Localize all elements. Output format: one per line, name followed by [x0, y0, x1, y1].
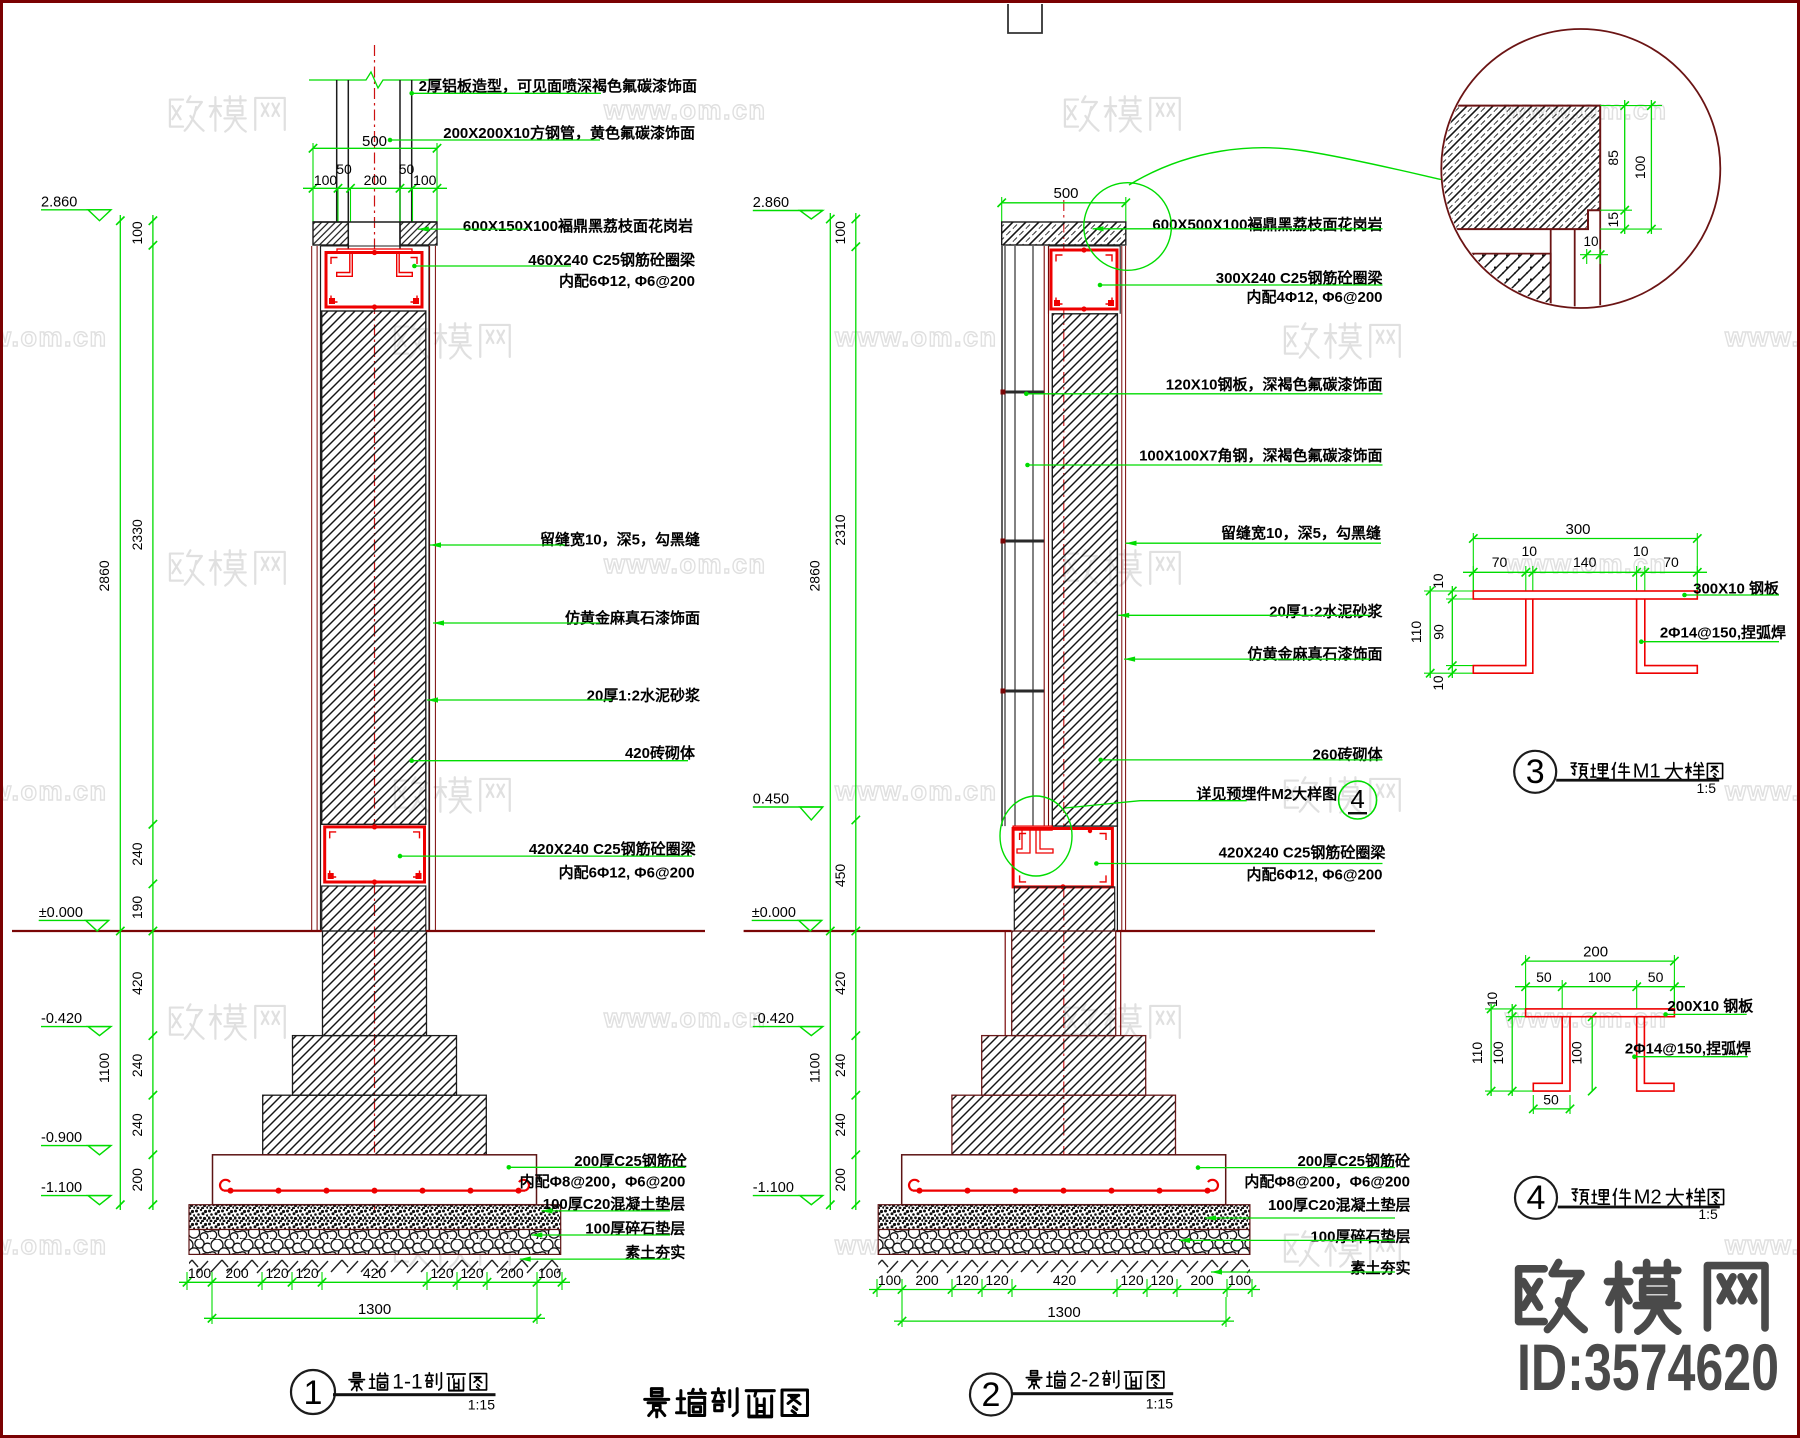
- svg-text:www.om.cn: www.om.cn: [1504, 1003, 1668, 1033]
- svg-text:±0.000: ±0.000: [39, 905, 83, 921]
- svg-text:100X100X7角钢，深褐色氟碳漆饰面: 100X100X7角钢，深褐色氟碳漆饰面: [1139, 447, 1382, 465]
- svg-text:450: 450: [832, 864, 848, 888]
- svg-text:100厚碎石垫层: 100厚碎石垫层: [1310, 1227, 1410, 1245]
- svg-text:420: 420: [363, 1265, 387, 1281]
- svg-text:100: 100: [878, 1272, 902, 1288]
- svg-text:www.om.cn: www.om.cn: [1724, 322, 1800, 352]
- svg-text:20厚1:2水泥砂浆: 20厚1:2水泥砂浆: [587, 687, 701, 705]
- svg-text:200X10 钢板: 200X10 钢板: [1667, 997, 1754, 1015]
- svg-text:100: 100: [129, 221, 145, 245]
- svg-text:2厚铝板造型，可见面喷深褐色氟碳漆饰面: 2厚铝板造型，可见面喷深褐色氟碳漆饰面: [419, 77, 697, 95]
- svg-text:1300: 1300: [1047, 1304, 1080, 1321]
- svg-text:内配Φ8@200，Φ6@200: 内配Φ8@200，Φ6@200: [520, 1173, 686, 1191]
- svg-text:仿黄金麻真石漆饰面: 仿黄金麻真石漆饰面: [565, 609, 700, 627]
- svg-text:20厚1:2水泥砂浆: 20厚1:2水泥砂浆: [1269, 603, 1383, 621]
- svg-text:内配Φ8@200，Φ6@200: 内配Φ8@200，Φ6@200: [1244, 1173, 1410, 1191]
- svg-text:500: 500: [362, 133, 387, 150]
- svg-text:85: 85: [1605, 150, 1621, 166]
- svg-text:90: 90: [1431, 624, 1447, 640]
- svg-text:240: 240: [832, 1113, 848, 1137]
- svg-text:±0.000: ±0.000: [752, 905, 796, 921]
- svg-text:420: 420: [129, 971, 145, 995]
- svg-text:120: 120: [295, 1265, 319, 1281]
- svg-text:留缝宽10，深5，勾黑缝: 留缝宽10，深5，勾黑缝: [540, 531, 700, 549]
- svg-text:2: 2: [982, 1376, 1001, 1414]
- svg-text:120: 120: [460, 1265, 484, 1281]
- svg-text:200: 200: [129, 1168, 145, 1192]
- svg-text:www.om.cn: www.om.cn: [1724, 776, 1800, 806]
- svg-text:4: 4: [1527, 1179, 1546, 1217]
- svg-text:1100: 1100: [807, 1053, 823, 1083]
- svg-text:0.450: 0.450: [753, 792, 789, 808]
- svg-text:1:15: 1:15: [468, 1397, 495, 1413]
- svg-text:1100: 1100: [96, 1053, 112, 1083]
- svg-text:100: 100: [188, 1265, 212, 1281]
- svg-text:1: 1: [304, 1374, 323, 1412]
- svg-text:www.om.cn: www.om.cn: [0, 1230, 108, 1260]
- svg-text:-1.100: -1.100: [41, 1180, 82, 1196]
- svg-text:200: 200: [500, 1265, 524, 1281]
- svg-text:50: 50: [1543, 1091, 1559, 1107]
- svg-text:留缝宽10，深5，勾黑缝: 留缝宽10，深5，勾黑缝: [1221, 524, 1381, 542]
- svg-text:420X240 C25钢筋砼圈梁: 420X240 C25钢筋砼圈梁: [1219, 844, 1387, 862]
- svg-text:100厚C20混凝土垫层: 100厚C20混凝土垫层: [1268, 1196, 1411, 1214]
- svg-text:100: 100: [1632, 156, 1648, 180]
- svg-text:200: 200: [915, 1272, 939, 1288]
- svg-text:100: 100: [413, 172, 437, 188]
- svg-text:www.om.cn: www.om.cn: [834, 322, 998, 352]
- svg-text:420砖砌体: 420砖砌体: [625, 744, 696, 762]
- svg-text:内配6Φ12, Φ6@200: 内配6Φ12, Φ6@200: [559, 864, 695, 882]
- svg-text:110: 110: [1469, 1042, 1485, 1065]
- svg-text:140: 140: [1573, 554, 1597, 570]
- svg-text:1-1: 1-1: [392, 1371, 422, 1394]
- svg-text:120: 120: [1120, 1272, 1144, 1288]
- svg-text:120: 120: [265, 1265, 289, 1281]
- svg-text:内配4Φ12, Φ6@200: 内配4Φ12, Φ6@200: [1247, 288, 1383, 306]
- svg-text:1:5: 1:5: [1698, 1206, 1718, 1222]
- svg-text:仿黄金麻真石漆饰面: 仿黄金麻真石漆饰面: [1247, 645, 1382, 663]
- svg-text:100: 100: [538, 1265, 562, 1281]
- svg-text:100: 100: [1490, 1041, 1506, 1065]
- svg-text:300X240 C25钢筋砼圈梁: 300X240 C25钢筋砼圈梁: [1216, 269, 1384, 287]
- svg-text:100: 100: [832, 221, 848, 245]
- svg-text:www.om.cn: www.om.cn: [603, 1003, 767, 1033]
- svg-text:2860: 2860: [807, 560, 823, 591]
- svg-text:200: 200: [832, 1168, 848, 1192]
- svg-text:10: 10: [1431, 573, 1446, 588]
- svg-text:600X500X100褔鼎黑荔枝面花岗岩: 600X500X100褔鼎黑荔枝面花岗岩: [1152, 215, 1382, 233]
- svg-text:www.om.cn: www.om.cn: [834, 776, 998, 806]
- svg-text:内配6Φ12, Φ6@200: 内配6Φ12, Φ6@200: [1247, 865, 1383, 883]
- svg-text:190: 190: [129, 896, 145, 920]
- svg-text:50: 50: [336, 161, 352, 177]
- svg-text:www.om.cn: www.om.cn: [603, 549, 767, 579]
- svg-text:200X200X10方钢管，黄色氟碳漆饰面: 200X200X10方钢管，黄色氟碳漆饰面: [443, 124, 695, 142]
- svg-text:200: 200: [1583, 944, 1608, 961]
- svg-text:120: 120: [1150, 1272, 1174, 1288]
- svg-text:-1.100: -1.100: [753, 1180, 794, 1196]
- svg-text:500: 500: [1053, 185, 1078, 202]
- svg-text:600X150X100褔鼎黑荔枝面花岗岩: 600X150X100褔鼎黑荔枝面花岗岩: [463, 217, 693, 235]
- svg-text:2.860: 2.860: [41, 194, 77, 210]
- svg-text:www.om.cn: www.om.cn: [0, 322, 108, 352]
- svg-text:240: 240: [832, 1054, 848, 1078]
- svg-text:10: 10: [1431, 675, 1446, 690]
- svg-text:2Φ14@150,捏弧焊: 2Φ14@150,捏弧焊: [1625, 1039, 1751, 1057]
- svg-text:-0.420: -0.420: [753, 1011, 794, 1027]
- svg-text:120: 120: [430, 1265, 454, 1281]
- svg-text:50: 50: [1536, 969, 1552, 985]
- svg-text:200: 200: [364, 172, 388, 188]
- svg-text:120X10钢板，深褐色氟碳漆饰面: 120X10钢板，深褐色氟碳漆饰面: [1166, 375, 1383, 393]
- svg-text:420X240 C25钢筋砼圈梁: 420X240 C25钢筋砼圈梁: [529, 840, 697, 858]
- svg-text:420: 420: [1053, 1272, 1077, 1288]
- svg-text:10: 10: [1522, 543, 1538, 559]
- svg-text:-0.900: -0.900: [41, 1130, 82, 1146]
- svg-text:240: 240: [129, 842, 145, 866]
- svg-text:120: 120: [985, 1272, 1009, 1288]
- svg-text:10: 10: [1583, 234, 1598, 249]
- svg-text:2.860: 2.860: [753, 195, 789, 211]
- svg-text:70: 70: [1492, 554, 1508, 570]
- svg-text:素土夯实: 素土夯实: [1350, 1259, 1410, 1277]
- svg-text:10: 10: [1485, 992, 1500, 1007]
- svg-text:15: 15: [1605, 212, 1621, 228]
- svg-text:100: 100: [1569, 1041, 1585, 1065]
- svg-text:10: 10: [1633, 543, 1649, 559]
- svg-text:50: 50: [1648, 969, 1664, 985]
- svg-text:100: 100: [1228, 1272, 1252, 1288]
- svg-text:120: 120: [955, 1272, 979, 1288]
- svg-text:300: 300: [1565, 521, 1590, 538]
- svg-text:200: 200: [225, 1265, 249, 1281]
- svg-text:240: 240: [129, 1113, 145, 1137]
- svg-text:260砖砌体: 260砖砌体: [1312, 746, 1383, 764]
- svg-text:110: 110: [1408, 621, 1424, 644]
- svg-text:2Φ14@150,捏弧焊: 2Φ14@150,捏弧焊: [1660, 624, 1786, 642]
- svg-text:200: 200: [1190, 1272, 1214, 1288]
- svg-text:420: 420: [832, 971, 848, 995]
- svg-text:内配6Φ12, Φ6@200: 内配6Φ12, Φ6@200: [559, 272, 695, 290]
- svg-text:M2: M2: [1634, 1187, 1662, 1209]
- svg-text:100: 100: [1588, 969, 1612, 985]
- svg-text:www.om.cn: www.om.cn: [603, 95, 767, 125]
- svg-text:240: 240: [129, 1054, 145, 1078]
- svg-text:www.om.cn: www.om.cn: [0, 776, 108, 806]
- svg-text:2860: 2860: [96, 560, 112, 591]
- svg-text:1:15: 1:15: [1146, 1396, 1173, 1412]
- svg-text:3: 3: [1526, 753, 1545, 791]
- svg-text:1:5: 1:5: [1697, 780, 1717, 796]
- svg-text:www.om.cn: www.om.cn: [1724, 1230, 1800, 1260]
- svg-text:2330: 2330: [129, 519, 145, 550]
- svg-text:100: 100: [314, 172, 338, 188]
- svg-text:2310: 2310: [832, 514, 848, 545]
- svg-text:2-2: 2-2: [1070, 1369, 1100, 1392]
- svg-text:ID:3574620: ID:3574620: [1517, 1330, 1779, 1404]
- svg-text:-0.420: -0.420: [41, 1011, 82, 1027]
- svg-text:4: 4: [1350, 784, 1364, 814]
- svg-text:1300: 1300: [358, 1301, 391, 1318]
- svg-text:70: 70: [1663, 554, 1679, 570]
